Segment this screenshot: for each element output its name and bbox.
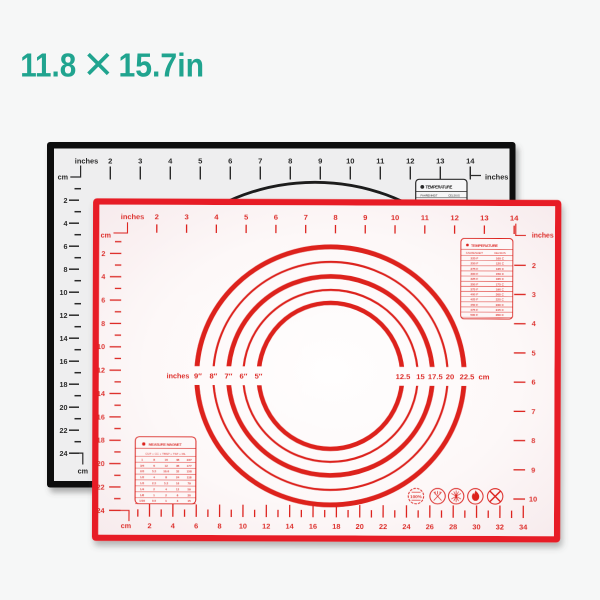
svg-text:14: 14 — [510, 214, 519, 223]
svg-text:9: 9 — [363, 213, 367, 222]
svg-text:24: 24 — [176, 475, 180, 479]
svg-text:10: 10 — [239, 521, 247, 530]
svg-text:250 F: 250 F — [471, 262, 479, 266]
svg-text:10: 10 — [391, 213, 399, 222]
svg-text:6: 6 — [194, 521, 198, 530]
svg-text:CELSIUS: CELSIUS — [494, 251, 506, 255]
svg-text:2: 2 — [532, 261, 536, 270]
svg-text:22: 22 — [97, 482, 105, 491]
svg-text:2: 2 — [101, 249, 105, 258]
svg-text:FAHRENHEIT: FAHRENHEIT — [466, 251, 483, 255]
svg-text:11: 11 — [421, 213, 430, 222]
svg-text:275 F: 275 F — [471, 267, 479, 271]
svg-text:6: 6 — [274, 213, 278, 222]
svg-text:9: 9 — [531, 465, 535, 474]
svg-text:inches: inches — [532, 233, 554, 240]
svg-text:cm: cm — [121, 521, 131, 530]
svg-text:inches: inches — [167, 371, 190, 380]
svg-text:cm: cm — [58, 173, 68, 182]
svg-text:1/3: 1/3 — [140, 481, 145, 485]
svg-text:22.5: 22.5 — [460, 372, 476, 381]
svg-text:12: 12 — [262, 522, 270, 531]
svg-text:260 C: 260 C — [496, 313, 505, 317]
svg-text:14: 14 — [97, 389, 105, 398]
svg-text:32: 32 — [176, 470, 180, 474]
svg-text:12: 12 — [176, 487, 180, 491]
svg-text:100%: 100% — [410, 494, 422, 499]
svg-text:36: 36 — [176, 464, 180, 468]
svg-text:79: 79 — [187, 481, 191, 485]
svg-text:18: 18 — [60, 380, 68, 389]
svg-text:9″: 9″ — [194, 372, 202, 381]
svg-text:9: 9 — [318, 157, 322, 166]
svg-text:300 F: 300 F — [470, 272, 478, 276]
svg-text:450 F: 450 F — [470, 303, 478, 307]
svg-text:325 F: 325 F — [470, 277, 478, 281]
svg-text:12: 12 — [164, 464, 168, 468]
svg-text:225 F: 225 F — [471, 257, 479, 261]
svg-text:6″: 6″ — [240, 372, 248, 381]
svg-text:13: 13 — [480, 213, 488, 222]
svg-text:230 C: 230 C — [496, 303, 505, 307]
svg-text:24: 24 — [402, 522, 411, 531]
svg-text:inches: inches — [485, 172, 508, 181]
svg-text:16: 16 — [165, 458, 169, 462]
svg-text:1/4: 1/4 — [140, 487, 145, 491]
svg-text:0.5: 0.5 — [152, 499, 157, 503]
svg-text:6: 6 — [228, 157, 232, 166]
svg-text:24: 24 — [60, 449, 68, 458]
svg-text:3: 3 — [184, 212, 188, 221]
svg-text:5″: 5″ — [255, 372, 263, 381]
svg-text:120 C: 120 C — [496, 262, 505, 266]
svg-text:10: 10 — [97, 342, 105, 351]
svg-text:inches: inches — [75, 157, 98, 166]
svg-text:TEMPERATURE: TEMPERATURE — [426, 184, 453, 189]
svg-text:177: 177 — [187, 464, 192, 468]
svg-text:14: 14 — [60, 334, 68, 343]
svg-text:350 F: 350 F — [470, 282, 478, 286]
svg-text:22: 22 — [60, 426, 68, 435]
svg-text:6: 6 — [101, 296, 105, 305]
svg-text:15: 15 — [416, 372, 425, 381]
svg-text:6: 6 — [531, 378, 535, 387]
svg-text:3: 3 — [138, 157, 142, 166]
svg-text:475 F: 475 F — [470, 308, 478, 312]
svg-text:10: 10 — [60, 288, 68, 297]
svg-text:20: 20 — [446, 372, 454, 381]
svg-text:118: 118 — [187, 476, 192, 480]
svg-text:205 C: 205 C — [496, 293, 505, 297]
svg-text:16: 16 — [60, 357, 68, 366]
svg-text:7: 7 — [258, 157, 262, 166]
svg-text:400 F: 400 F — [470, 292, 478, 296]
svg-text:cm: cm — [78, 466, 88, 475]
svg-text:105 C: 105 C — [496, 257, 505, 261]
svg-text:FAHRENHEIT: FAHRENHEIT — [420, 193, 437, 197]
svg-text:8: 8 — [333, 213, 337, 222]
svg-text:4: 4 — [101, 272, 105, 281]
svg-text:2: 2 — [147, 521, 151, 530]
svg-text:2: 2 — [108, 157, 112, 166]
svg-text:2.5: 2.5 — [152, 481, 157, 485]
svg-text:11.8: 11.8 — [20, 47, 76, 84]
svg-text:10: 10 — [529, 495, 537, 504]
svg-text:32: 32 — [496, 522, 504, 531]
svg-text:26: 26 — [426, 522, 434, 531]
svg-text:12: 12 — [60, 311, 68, 320]
svg-text:59: 59 — [187, 487, 191, 491]
svg-text:190 C: 190 C — [496, 287, 505, 291]
svg-text:245 C: 245 C — [496, 308, 505, 312]
svg-text:TEMPERATURE: TEMPERATURE — [471, 243, 498, 248]
svg-text:12: 12 — [97, 366, 105, 375]
svg-text:11: 11 — [376, 157, 385, 166]
svg-text:20: 20 — [60, 403, 68, 412]
svg-text:13: 13 — [436, 157, 444, 166]
svg-text:8: 8 — [217, 521, 221, 530]
svg-text:17.5: 17.5 — [428, 372, 444, 381]
svg-text:375 F: 375 F — [470, 287, 478, 291]
svg-text:16: 16 — [176, 481, 180, 485]
svg-text:3/4: 3/4 — [140, 464, 145, 468]
svg-text:6: 6 — [64, 242, 68, 251]
svg-text:165 C: 165 C — [496, 277, 505, 281]
svg-text:8: 8 — [64, 265, 68, 274]
svg-text:16: 16 — [309, 522, 317, 531]
svg-text:48: 48 — [176, 458, 180, 462]
svg-text:237: 237 — [187, 458, 192, 462]
svg-text:425 F: 425 F — [470, 298, 478, 302]
svg-text:12: 12 — [450, 213, 458, 222]
svg-text:1/8: 1/8 — [140, 493, 145, 497]
svg-text:cm: cm — [478, 373, 489, 382]
svg-text:inches: inches — [121, 212, 144, 221]
svg-text:CUP + CC + TBSP + TSP + ML: CUP + CC + TBSP + TSP + ML — [145, 452, 186, 456]
svg-text:2: 2 — [64, 196, 68, 205]
svg-text:cm: cm — [101, 231, 111, 240]
svg-text:5: 5 — [531, 349, 535, 358]
svg-text:7: 7 — [304, 213, 308, 222]
svg-text:10: 10 — [346, 157, 354, 166]
svg-text:8: 8 — [531, 436, 535, 445]
svg-text:2/3: 2/3 — [140, 469, 145, 473]
svg-text:8: 8 — [101, 319, 105, 328]
svg-text:16: 16 — [97, 412, 105, 421]
svg-text:18: 18 — [332, 522, 340, 531]
svg-text:30: 30 — [187, 493, 191, 497]
svg-text:158: 158 — [187, 470, 192, 474]
svg-text:8: 8 — [288, 157, 292, 166]
svg-text:1/2: 1/2 — [140, 475, 145, 479]
svg-text:10.6: 10.6 — [163, 470, 169, 474]
svg-text:500 F: 500 F — [470, 313, 478, 317]
svg-text:5.5: 5.5 — [152, 469, 157, 473]
svg-text:4: 4 — [64, 219, 68, 228]
svg-text:CELSIUS: CELSIUS — [448, 193, 460, 197]
svg-text:12: 12 — [406, 157, 414, 166]
svg-text:3: 3 — [532, 290, 536, 299]
svg-text:18: 18 — [97, 436, 105, 445]
svg-text:20: 20 — [356, 522, 364, 531]
svg-text:150 C: 150 C — [496, 272, 505, 276]
svg-text:28: 28 — [449, 522, 457, 531]
svg-text:7″: 7″ — [225, 372, 233, 381]
svg-text:175 C: 175 C — [496, 282, 505, 286]
svg-text:20: 20 — [97, 459, 105, 468]
svg-text:7: 7 — [531, 407, 535, 416]
svg-text:8″: 8″ — [209, 372, 217, 381]
svg-text:14: 14 — [466, 157, 475, 166]
svg-text:14: 14 — [285, 522, 294, 531]
svg-text:5.3: 5.3 — [164, 481, 169, 485]
svg-text:135 C: 135 C — [496, 267, 505, 271]
svg-text:22: 22 — [379, 522, 387, 531]
svg-text:2: 2 — [155, 212, 159, 221]
svg-text:24: 24 — [96, 506, 104, 515]
svg-text:MEASURE MAGNET: MEASURE MAGNET — [149, 442, 183, 447]
svg-text:15: 15 — [187, 499, 191, 503]
svg-text:1/16: 1/16 — [139, 499, 145, 503]
svg-text:30: 30 — [472, 522, 480, 531]
svg-text:15.7in: 15.7in — [119, 47, 205, 84]
svg-text:34: 34 — [519, 522, 528, 531]
svg-text:220 C: 220 C — [496, 298, 505, 302]
svg-text:12.5: 12.5 — [396, 372, 412, 381]
